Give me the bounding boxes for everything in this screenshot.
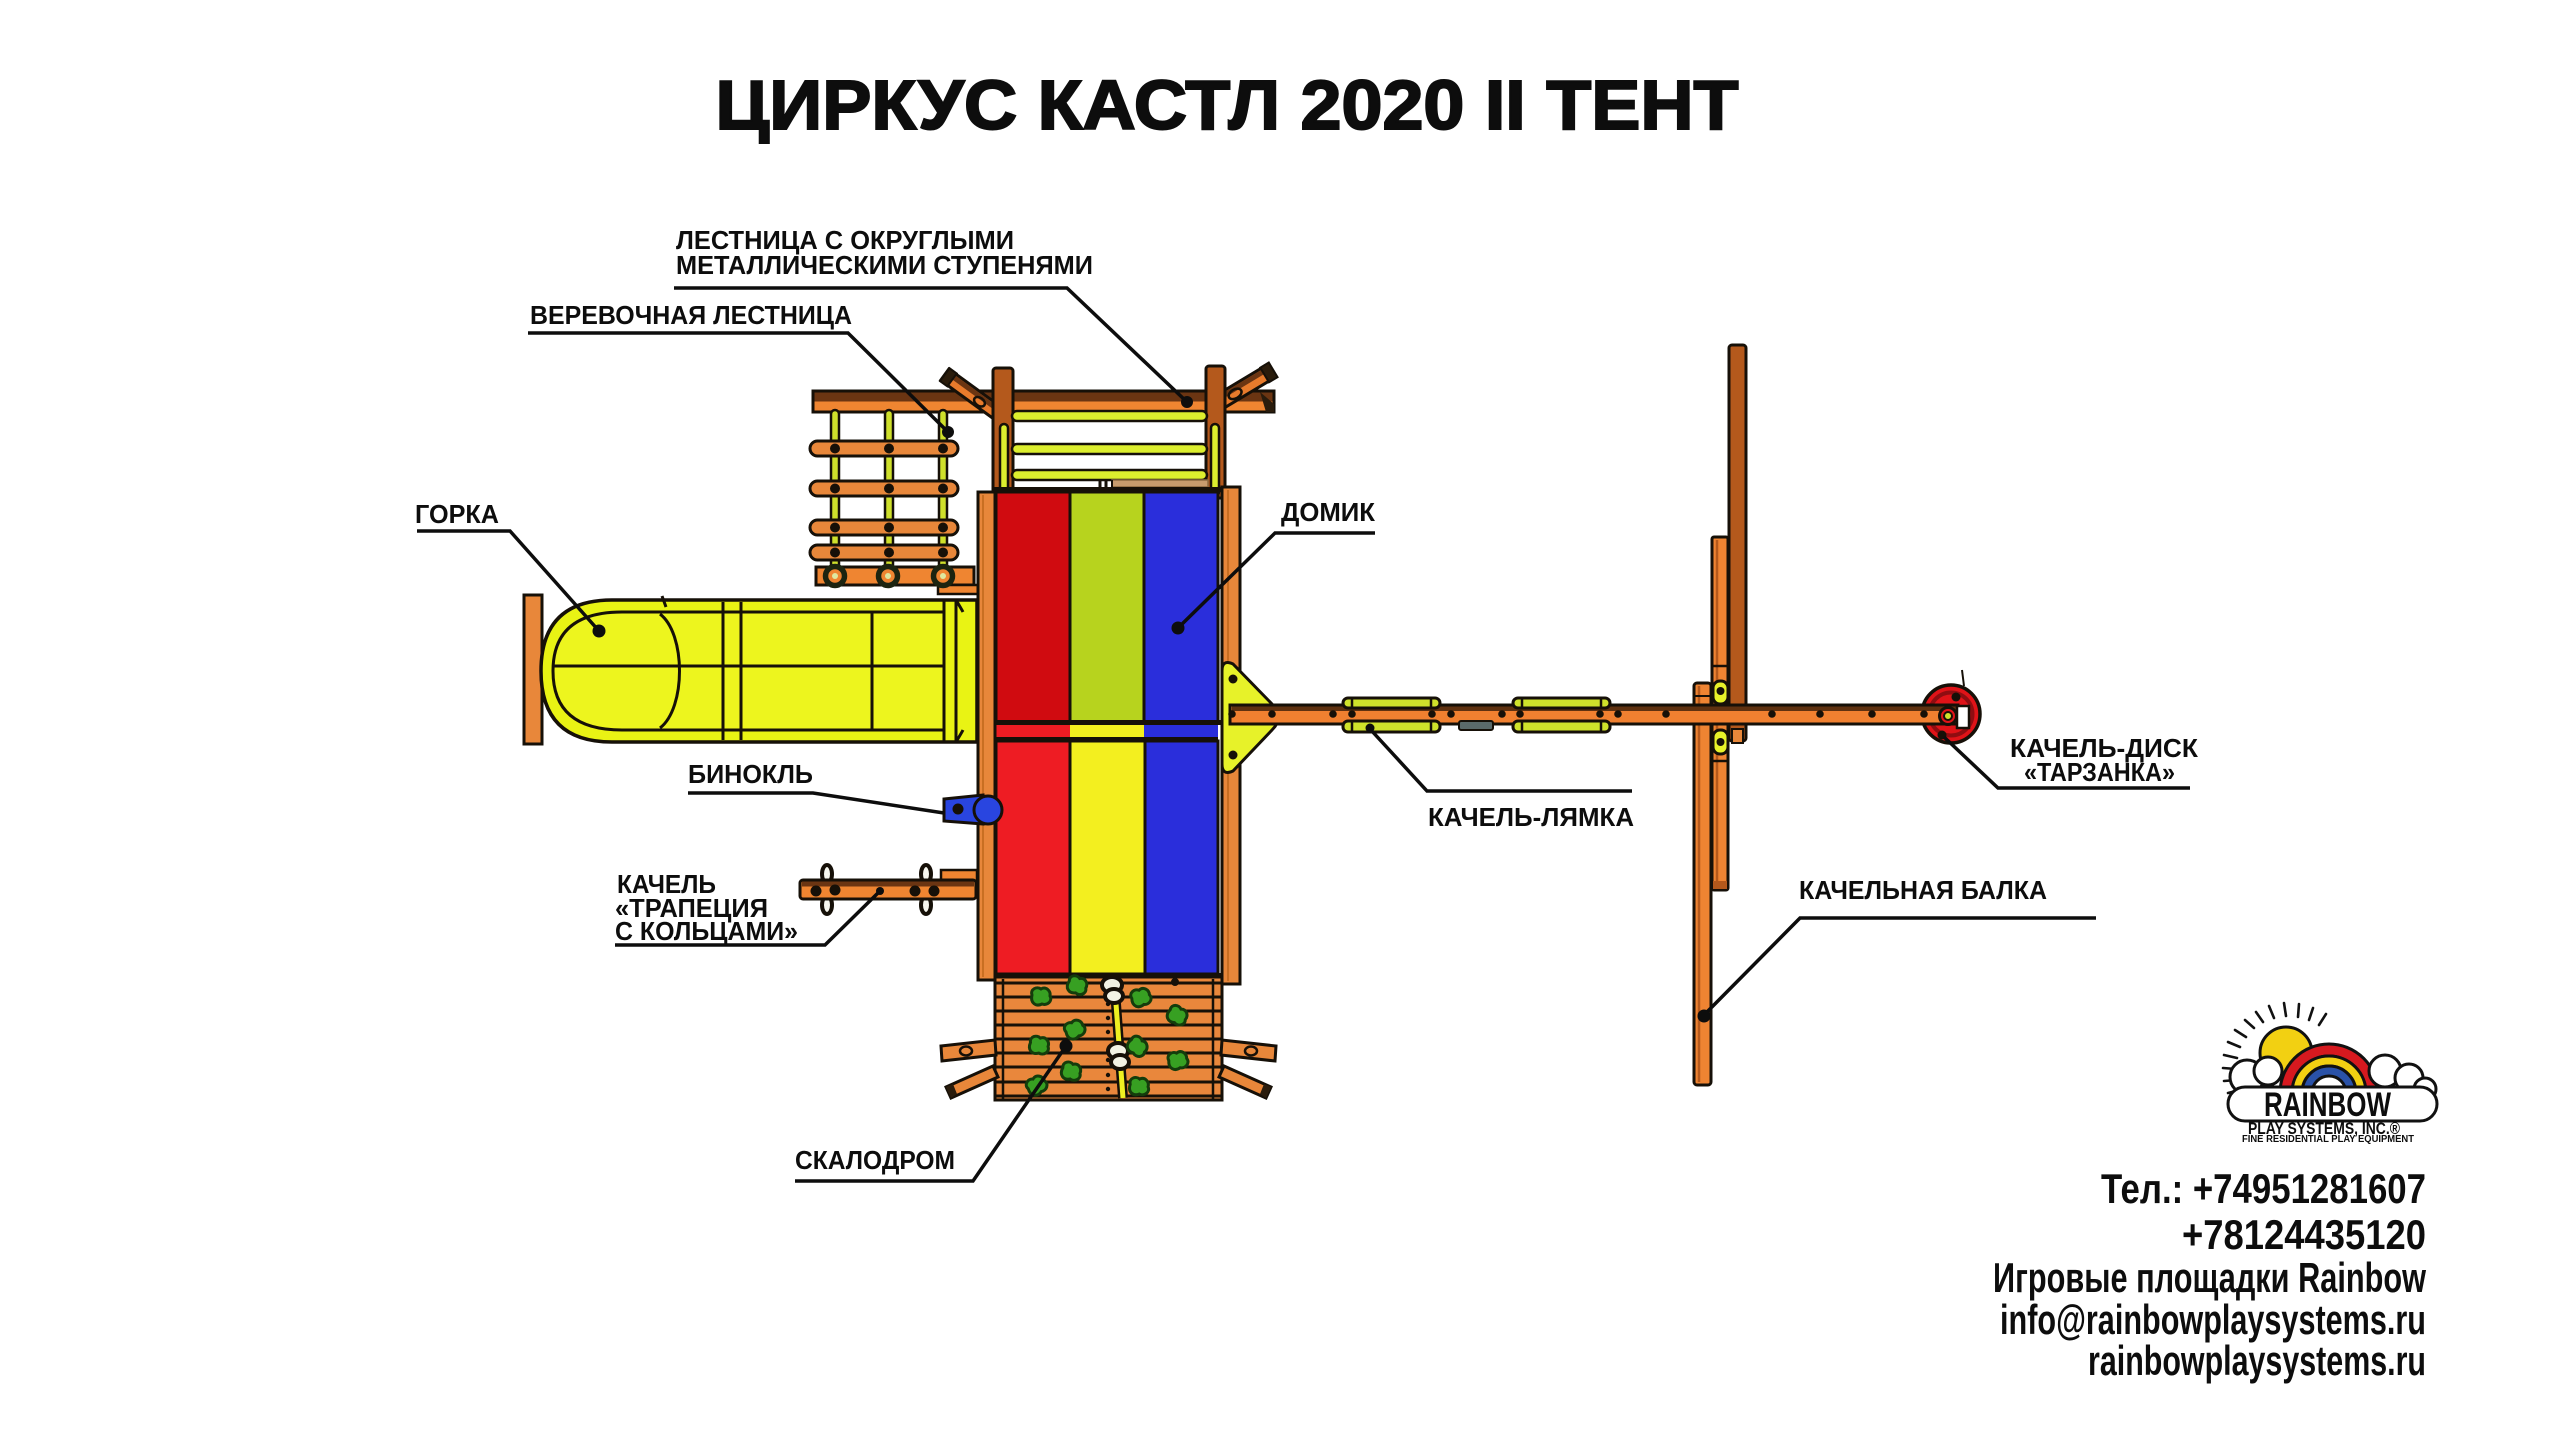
svg-text:ДОМИК: ДОМИК: [1281, 497, 1375, 527]
svg-text:С КОЛЬЦАМИ»: С КОЛЬЦАМИ»: [615, 916, 798, 946]
svg-text:Игровые площадки Rainbow: Игровые площадки Rainbow: [1993, 1254, 2426, 1301]
svg-text:«ТАРЗАНКА»: «ТАРЗАНКА»: [2024, 757, 2175, 787]
svg-text:Тел.: +74951281607: Тел.: +74951281607: [2101, 1165, 2426, 1212]
svg-text:ЦИРКУС КАСТЛ 2020 II ТЕНТ: ЦИРКУС КАСТЛ 2020 II ТЕНТ: [716, 66, 1739, 144]
svg-text:FINE RESIDENTIAL PLAY EQUIPMEN: FINE RESIDENTIAL PLAY EQUIPMENT: [2242, 1133, 2415, 1145]
svg-text:КАЧЕЛЬНАЯ БАЛКА: КАЧЕЛЬНАЯ БАЛКА: [1799, 875, 2047, 905]
svg-text:КАЧЕЛЬ-ЛЯМКА: КАЧЕЛЬ-ЛЯМКА: [1428, 802, 1634, 832]
svg-text:rainbowplaysystems.ru: rainbowplaysystems.ru: [2088, 1337, 2426, 1384]
svg-text:+78124435120: +78124435120: [2182, 1211, 2426, 1258]
svg-text:ГОРКА: ГОРКА: [415, 499, 499, 529]
svg-text:info@rainbowplaysystems.ru: info@rainbowplaysystems.ru: [2000, 1296, 2426, 1343]
svg-text:ВЕРЕВОЧНАЯ ЛЕСТНИЦА: ВЕРЕВОЧНАЯ ЛЕСТНИЦА: [530, 300, 852, 330]
svg-text:СКАЛОДРОМ: СКАЛОДРОМ: [795, 1145, 955, 1175]
svg-text:БИНОКЛЬ: БИНОКЛЬ: [688, 759, 813, 789]
svg-text:МЕТАЛЛИЧЕСКИМИ СТУПЕНЯМИ: МЕТАЛЛИЧЕСКИМИ СТУПЕНЯМИ: [676, 250, 1093, 280]
